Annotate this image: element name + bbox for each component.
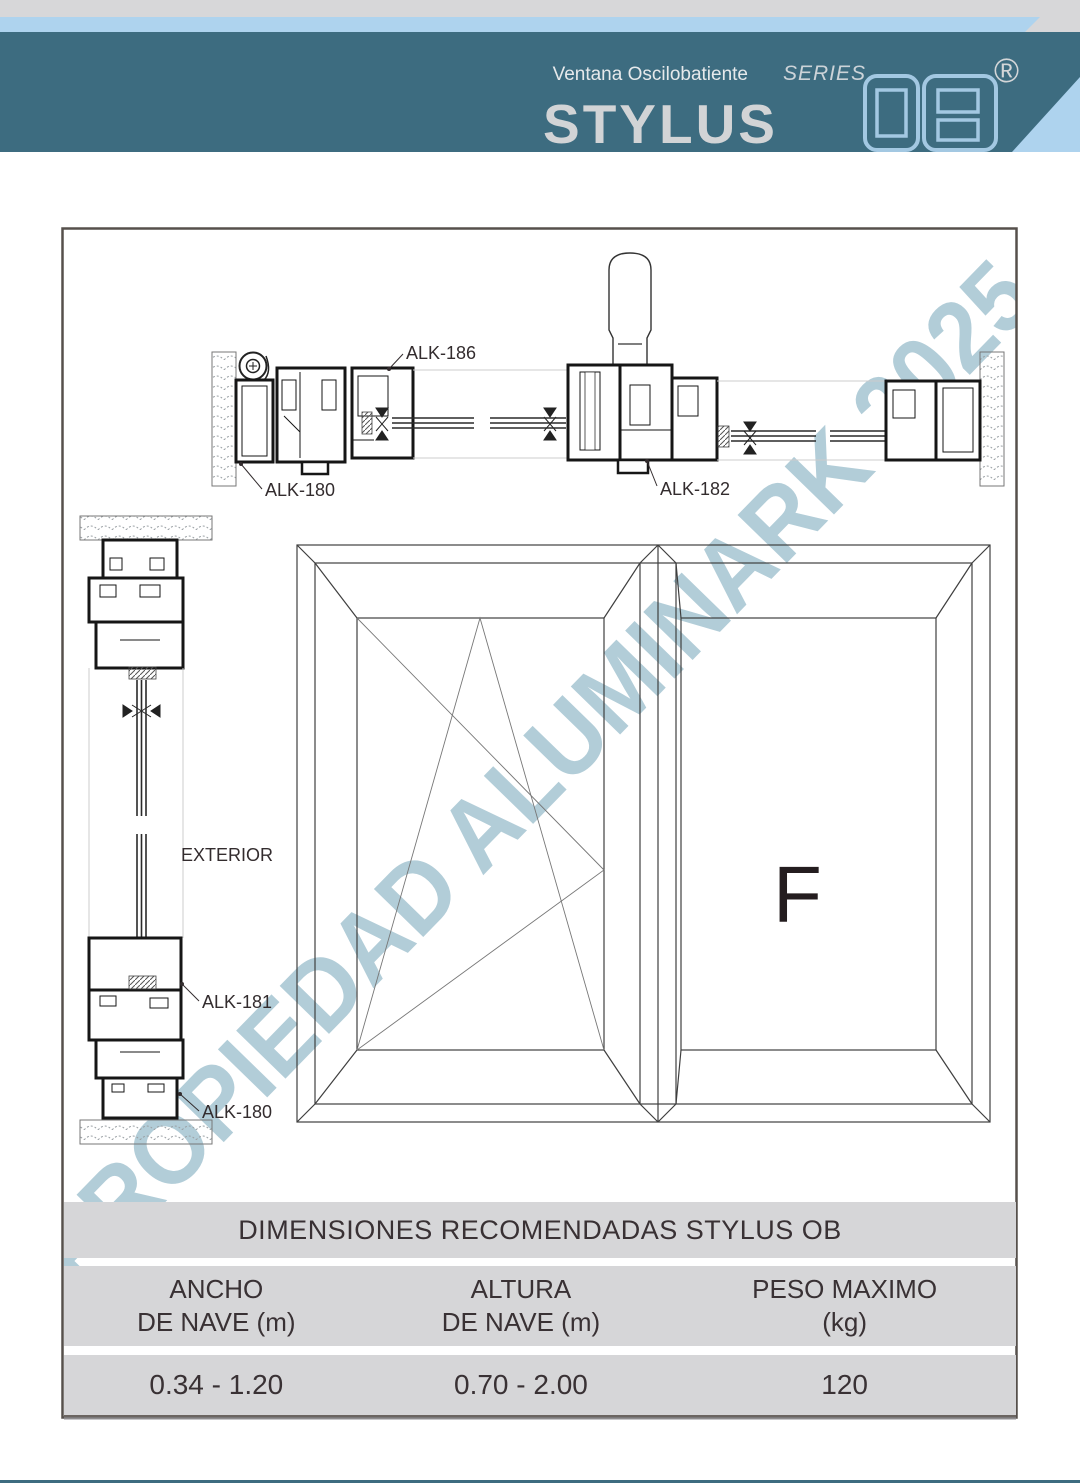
glass-pane-lines	[392, 418, 566, 428]
table-header-row: ANCHODE NAVE (m) ALTURADE NAVE (m) PESO …	[64, 1266, 1016, 1346]
label-exterior: EXTERIOR	[181, 845, 273, 865]
value-ancho: 0.34 - 1.20	[64, 1355, 369, 1415]
window-handle	[609, 253, 651, 365]
product-title: STYLUS	[543, 93, 778, 155]
label-alk182: ALK-182	[660, 479, 730, 499]
col-header-peso: PESO MAXIMO(kg)	[673, 1273, 1016, 1346]
hinge-detail	[240, 353, 269, 381]
header-banner: Ventana Oscilobatiente STYLUS SERIES ®	[0, 0, 1080, 155]
table-data-row: 0.34 - 1.20 0.70 - 2.00 120	[64, 1355, 1016, 1417]
col-header-ancho: ANCHODE NAVE (m)	[64, 1273, 369, 1346]
value-peso: 120	[673, 1355, 1016, 1415]
product-subtitle: Ventana Oscilobatiente	[553, 64, 748, 85]
fixed-pane-letter: F	[773, 850, 822, 939]
registered-icon: ®	[994, 52, 1019, 90]
label-alk181: ALK-181	[202, 992, 272, 1012]
label-alk186: ALK-186	[406, 343, 476, 363]
wall-hatch-left	[212, 352, 236, 486]
page-canvas: Ventana Oscilobatiente STYLUS SERIES ® P…	[0, 0, 1080, 1483]
wall-hatch-right	[980, 352, 1004, 486]
header-blue-strip	[0, 17, 1040, 32]
col-header-altura: ALTURADE NAVE (m)	[369, 1273, 674, 1346]
label-alk180-plan: ALK-180	[265, 480, 335, 500]
wall-hatch-top	[80, 516, 212, 540]
series-label: SERIES	[783, 62, 866, 85]
table-title: DIMENSIONES RECOMENDADAS STYLUS OB	[64, 1202, 1016, 1258]
glass-pane-lines-vertical	[137, 680, 146, 938]
value-altura: 0.70 - 2.00	[369, 1355, 674, 1415]
label-alk180-vert: ALK-180	[202, 1102, 272, 1122]
wall-hatch-bottom	[80, 1120, 212, 1144]
